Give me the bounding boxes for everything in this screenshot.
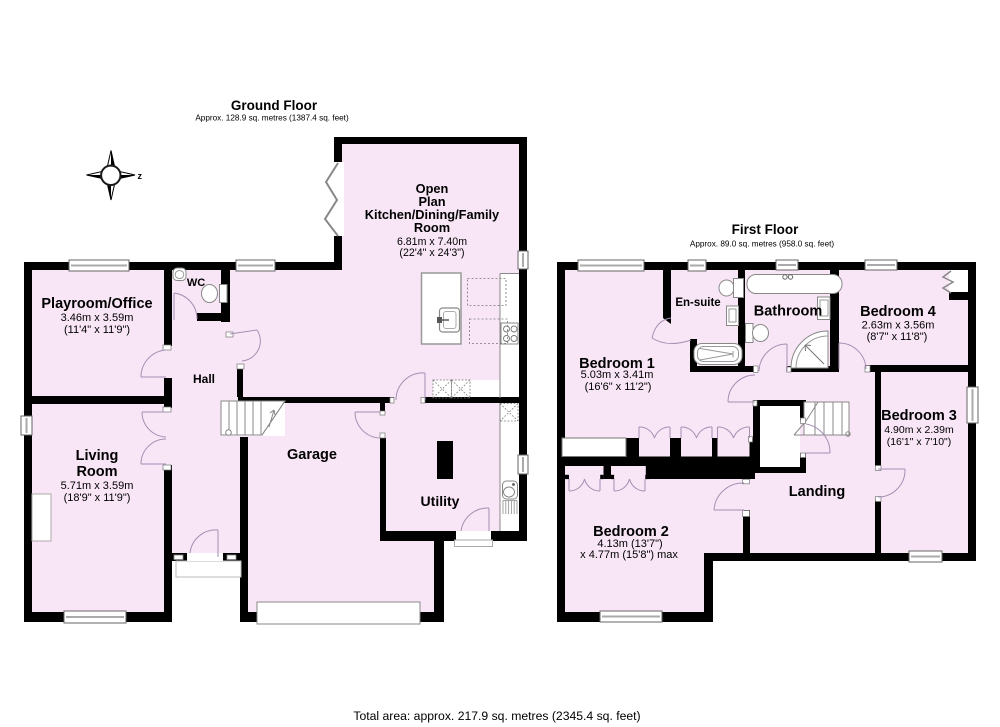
- svg-text:Room: Room: [76, 464, 117, 480]
- svg-text:x 4.77m (15'8") max: x 4.77m (15'8") max: [580, 549, 678, 561]
- svg-text:Approx. 128.9 sq. metres (1387: Approx. 128.9 sq. metres (1387.4 sq. fee…: [195, 114, 349, 123]
- svg-text:(22'4" x 24'3"): (22'4" x 24'3"): [399, 247, 464, 259]
- svg-text:WC: WC: [187, 277, 205, 289]
- svg-text:5.03m x 3.41m: 5.03m x 3.41m: [581, 369, 654, 381]
- svg-text:z: z: [138, 171, 143, 181]
- svg-text:(8'7" x 11'8"): (8'7" x 11'8"): [867, 331, 928, 343]
- svg-text:First Floor: First Floor: [732, 222, 799, 237]
- svg-text:Playroom/Office: Playroom/Office: [41, 296, 152, 312]
- svg-text:(16'6" x 11'2"): (16'6" x 11'2"): [585, 381, 652, 393]
- svg-text:Bedroom 4: Bedroom 4: [860, 304, 936, 320]
- svg-text:2.63m x 3.56m: 2.63m x 3.56m: [862, 320, 935, 332]
- svg-text:(11'4" x 11'9"): (11'4" x 11'9"): [64, 324, 130, 336]
- svg-text:(18'9" x 11'9"): (18'9" x 11'9"): [64, 492, 131, 504]
- svg-text:Garage: Garage: [287, 447, 337, 463]
- svg-text:Utility: Utility: [421, 493, 460, 509]
- svg-text:Approx. 89.0 sq. metres (958.0: Approx. 89.0 sq. metres (958.0 sq. feet): [690, 240, 835, 249]
- svg-text:3.46m x 3.59m: 3.46m x 3.59m: [61, 312, 134, 324]
- svg-text:Ground Floor: Ground Floor: [231, 98, 318, 113]
- svg-text:5.71m x 3.59m: 5.71m x 3.59m: [61, 480, 134, 492]
- svg-text:Living: Living: [76, 448, 119, 464]
- svg-text:Hall: Hall: [193, 372, 215, 386]
- svg-text:Landing: Landing: [789, 484, 845, 500]
- svg-text:Room: Room: [414, 220, 450, 235]
- svg-text:(16'1" x 7'10"): (16'1" x 7'10"): [887, 436, 952, 448]
- svg-text:4.90m x 2.39m: 4.90m x 2.39m: [884, 424, 954, 436]
- svg-text:Total area: approx. 217.9 sq.: Total area: approx. 217.9 sq. metres (23…: [353, 709, 640, 723]
- svg-text:Bathroom: Bathroom: [754, 304, 822, 320]
- svg-text:Bedroom 3: Bedroom 3: [881, 408, 957, 424]
- svg-text:En-suite: En-suite: [675, 297, 720, 309]
